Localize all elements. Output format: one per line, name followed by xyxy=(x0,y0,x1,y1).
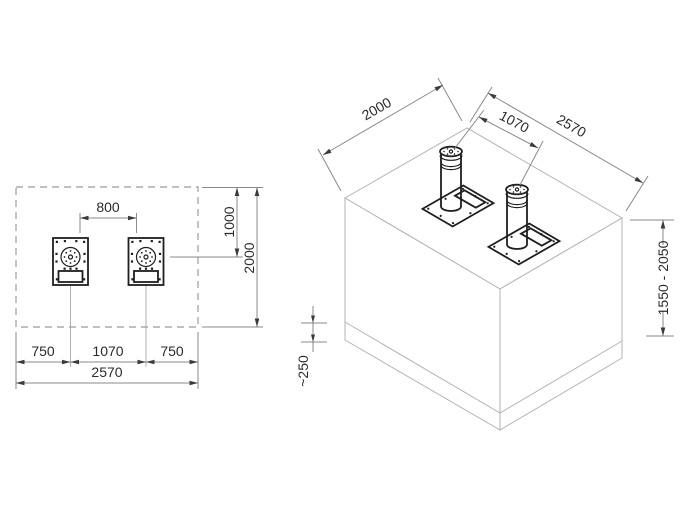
dim-1000-label: 1000 xyxy=(221,206,237,237)
foundation-block xyxy=(345,128,622,430)
arrow-down-lower xyxy=(311,335,315,343)
dim-2570-plan: 2570 xyxy=(16,364,198,383)
dim-base-thickness-label: ~250 xyxy=(295,355,311,387)
dim-800-label: 800 xyxy=(96,199,120,215)
technical-drawing-canvas: 800 1000 2000 750 1070 750 2570 xyxy=(0,0,686,515)
junction-recess-box xyxy=(59,271,83,282)
dim-1070-plan-label: 1070 xyxy=(92,343,123,359)
dim-2570-plan-label: 2570 xyxy=(91,364,122,380)
dim-2000-iso-label: 2000 xyxy=(359,94,394,124)
junction-recess-box xyxy=(134,271,158,282)
plan-view: 800 1000 2000 750 1070 750 2570 xyxy=(16,187,263,389)
dim-750-1070-750: 750 1070 750 xyxy=(16,332,198,389)
dim-750-right-label: 750 xyxy=(160,343,184,359)
dim-height-range: 1550 - 2050 xyxy=(630,220,674,336)
dim-2000-plan-label: 2000 xyxy=(241,242,257,273)
dim-2570-iso-label: 2570 xyxy=(554,111,589,141)
dim-1070-iso-label: 1070 xyxy=(497,107,532,136)
dim-800: 800 xyxy=(80,199,137,233)
bollard-installation-drawing: 800 1000 2000 750 1070 750 2570 xyxy=(0,0,686,515)
arrow-down-upper xyxy=(311,316,315,324)
dim-height-range-label: 1550 - 2050 xyxy=(655,240,671,315)
dim-750-left-label: 750 xyxy=(31,343,55,359)
flange-plate-left xyxy=(53,238,88,285)
flange-plate-right xyxy=(129,238,164,285)
dim-base-thickness: ~250 xyxy=(295,306,327,387)
iso-view: 2000 1070 2570 1550 - 2050 xyxy=(295,78,674,430)
